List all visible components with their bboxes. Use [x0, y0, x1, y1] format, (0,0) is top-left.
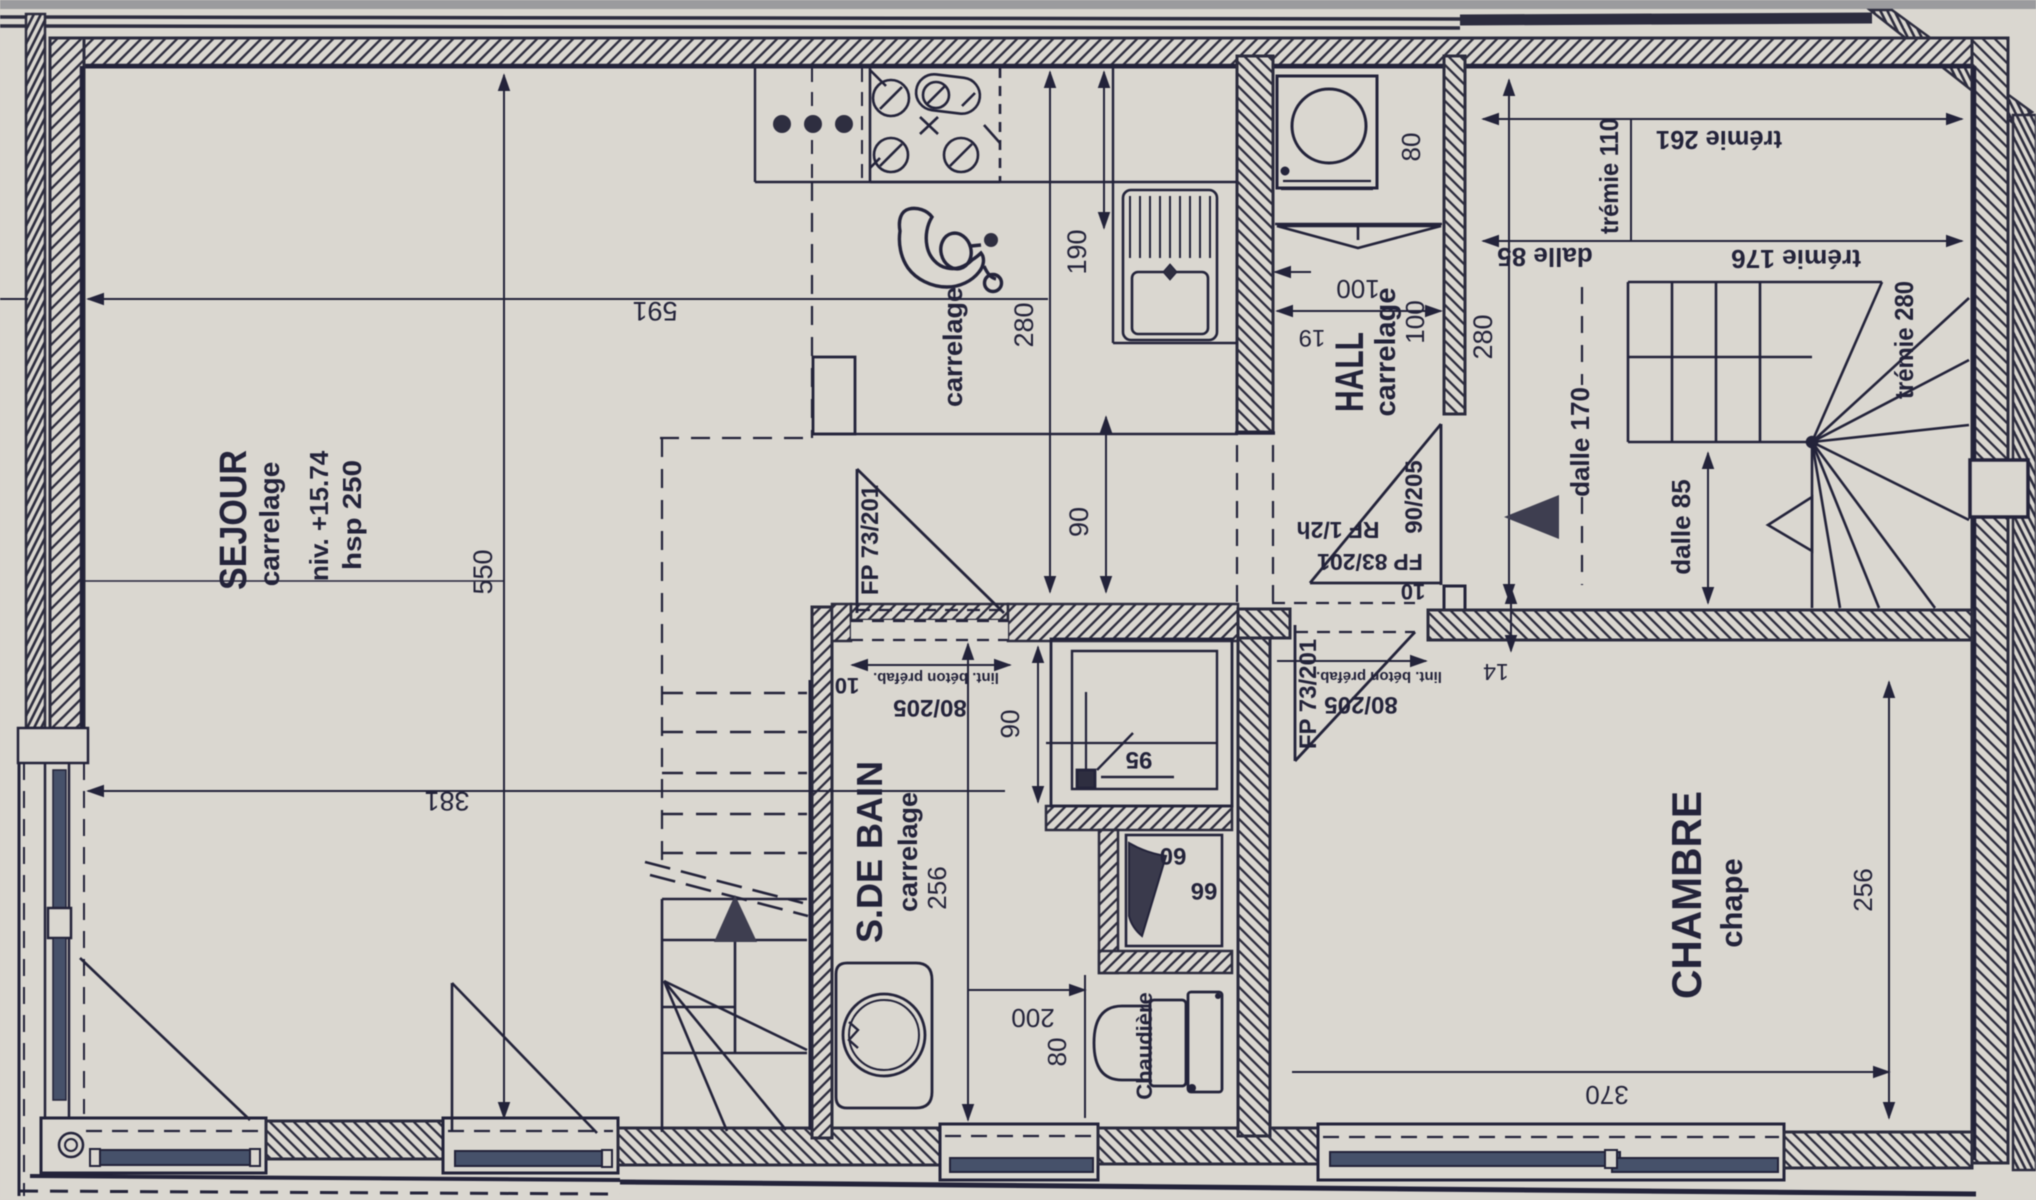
svg-text:280: 280	[1468, 314, 1498, 359]
svg-text:90/205: 90/205	[1401, 460, 1428, 533]
svg-text:591: 591	[632, 296, 677, 326]
svg-text:dalle 85: dalle 85	[1497, 242, 1592, 272]
svg-text:dalle 170: dalle 170	[1565, 387, 1595, 497]
svg-text:niv. +15.74: niv. +15.74	[304, 450, 334, 581]
svg-text:hsp 250: hsp 250	[337, 460, 367, 570]
svg-text:trémie 280: trémie 280	[1889, 281, 1919, 399]
svg-text:66: 66	[1191, 877, 1218, 904]
svg-text:lint. béton préfab.: lint. béton préfab.	[873, 669, 999, 686]
svg-text:256: 256	[922, 866, 952, 909]
svg-text:80: 80	[1042, 1038, 1072, 1067]
svg-text:80: 80	[1396, 133, 1426, 162]
svg-text:190: 190	[1062, 229, 1092, 274]
svg-text:carrelage: carrelage	[938, 287, 968, 407]
svg-text:100: 100	[1400, 300, 1430, 343]
svg-text:carrelage: carrelage	[893, 792, 923, 912]
svg-text:CHAMBRE: CHAMBRE	[1663, 791, 1710, 999]
svg-text:90: 90	[995, 710, 1025, 739]
svg-text:370: 370	[1585, 1080, 1628, 1110]
svg-text:RF 1/2h: RF 1/2h	[1296, 517, 1379, 543]
svg-text:dalle 85: dalle 85	[1666, 479, 1696, 574]
svg-text:10: 10	[835, 673, 859, 698]
svg-text:carrelage: carrelage	[1370, 288, 1402, 417]
svg-text:19: 19	[1299, 324, 1326, 351]
svg-text:trémie 176: trémie 176	[1731, 244, 1861, 274]
svg-text:14: 14	[1483, 659, 1509, 685]
svg-text:FP 73/201: FP 73/201	[857, 485, 884, 595]
svg-text:381: 381	[424, 786, 469, 816]
svg-text:trémie 110: trémie 110	[1594, 118, 1624, 234]
svg-text:550: 550	[468, 549, 498, 594]
svg-text:lint. béton préfab.: lint. béton préfab.	[1316, 668, 1442, 685]
svg-text:95: 95	[1126, 746, 1153, 773]
svg-text:FP 73/201: FP 73/201	[1295, 639, 1322, 749]
svg-text:Chaudière: Chaudière	[1132, 992, 1157, 1100]
svg-text:80/205: 80/205	[893, 694, 966, 721]
svg-text:FP 83/201: FP 83/201	[1317, 549, 1423, 575]
svg-text:90: 90	[1064, 507, 1094, 537]
svg-text:10: 10	[1401, 579, 1425, 604]
svg-text:60: 60	[1160, 842, 1187, 869]
svg-text:280: 280	[1009, 302, 1039, 347]
svg-text:chape: chape	[1714, 858, 1749, 948]
svg-text:80/205: 80/205	[1324, 691, 1397, 718]
svg-text:S.DE BAIN: S.DE BAIN	[849, 761, 890, 943]
svg-text:SEJOUR: SEJOUR	[213, 450, 255, 590]
svg-text:HALL: HALL	[1328, 332, 1372, 412]
svg-text:256: 256	[1848, 868, 1878, 911]
svg-text:trémie 261: trémie 261	[1656, 125, 1782, 155]
svg-text:200: 200	[1011, 1003, 1054, 1033]
svg-text:carrelage: carrelage	[254, 462, 285, 587]
